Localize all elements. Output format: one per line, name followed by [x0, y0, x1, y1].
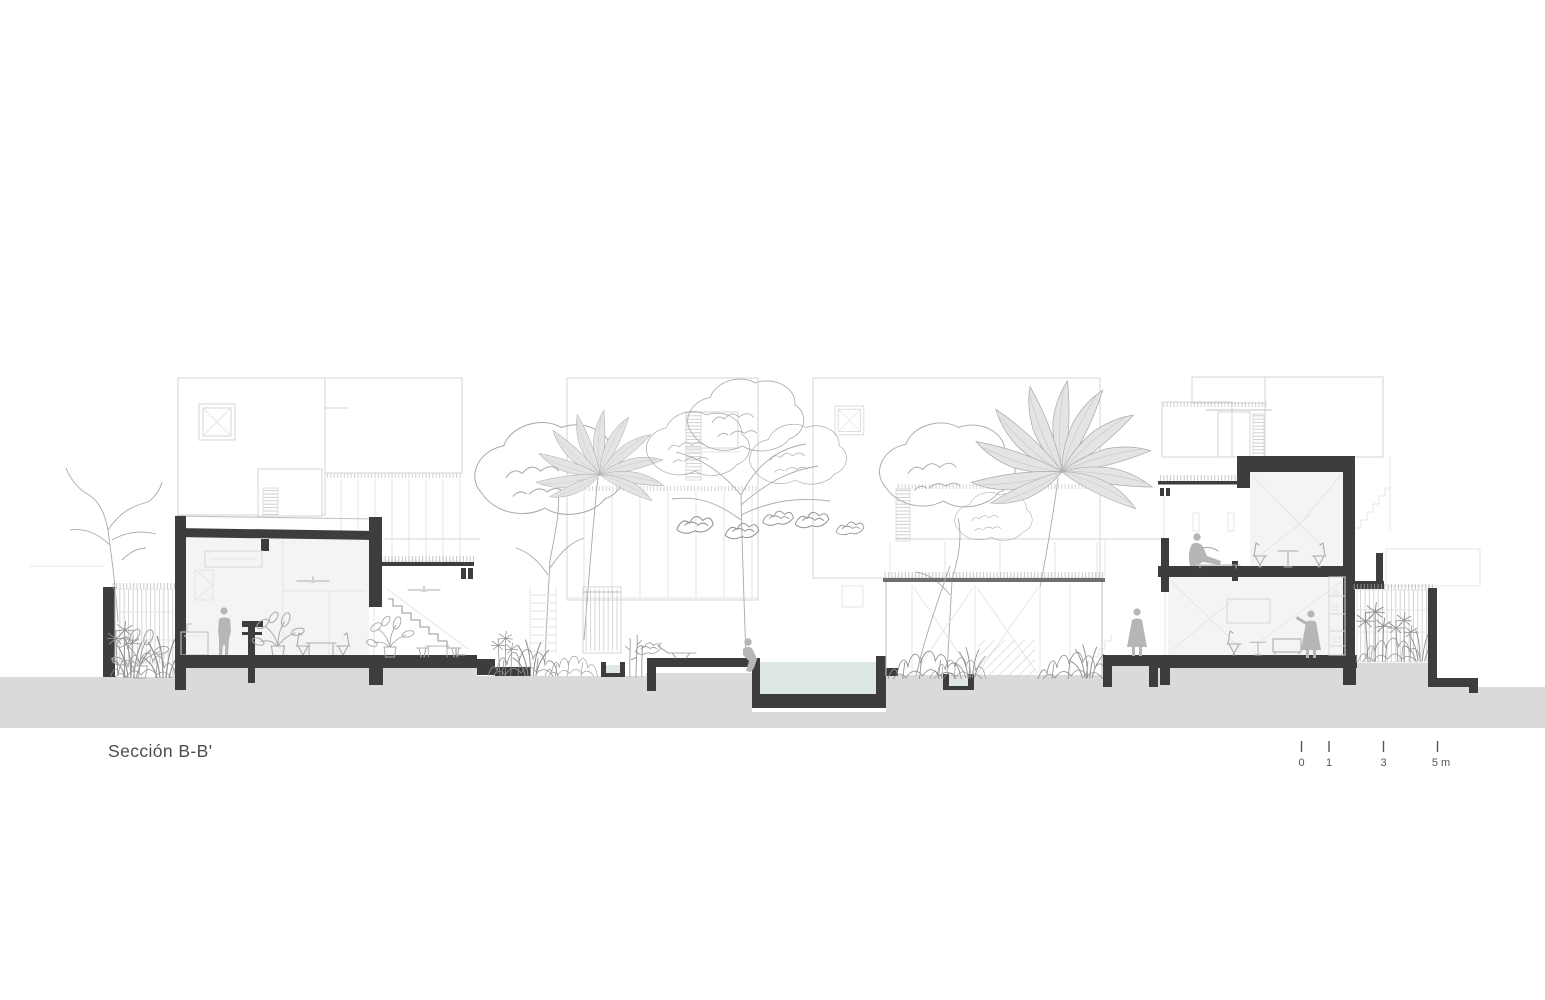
- right-middle-background-facade: [813, 378, 1160, 657]
- mid-floor-slab: [1158, 566, 1350, 577]
- terrace-roof: [1158, 481, 1240, 485]
- canopy-post: [1376, 553, 1383, 581]
- pool-shell: [752, 694, 886, 708]
- left-house-section: [175, 516, 531, 690]
- background-stair: [1355, 457, 1390, 530]
- garden-wall: [103, 587, 115, 677]
- tall-tree: [646, 379, 864, 658]
- left-courtyard: [103, 583, 184, 678]
- background-ladder: [530, 587, 556, 653]
- scale-label: 0: [1298, 757, 1304, 769]
- middle-background-facade: [567, 378, 758, 600]
- foundation-pier: [1343, 668, 1356, 685]
- pool-water: [760, 662, 876, 694]
- foundation-pier: [1160, 668, 1170, 685]
- louver-shutter: [686, 412, 701, 480]
- right-wall: [369, 517, 382, 607]
- courtyard-gate: [583, 587, 621, 653]
- louver-vent: [1253, 414, 1264, 457]
- drawing-title: Sección B-B': [108, 741, 212, 761]
- terrace-stair: [388, 599, 465, 655]
- foundation-pier: [369, 668, 383, 685]
- roof-corner: [1237, 456, 1250, 488]
- planting-bed: [978, 640, 1035, 676]
- pavilion-beam: [883, 578, 1105, 582]
- background-door: [1218, 412, 1250, 457]
- floor-slab: [1157, 655, 1357, 668]
- background-window: [199, 404, 235, 440]
- standing-woman-entry: [1127, 608, 1147, 656]
- lounge-chair: [658, 643, 696, 658]
- human-figures: [218, 533, 1321, 672]
- section-drawing-canvas: Sección B-B' 0 1 3 5 m: [0, 0, 1545, 1000]
- shrubs: [545, 656, 598, 676]
- terrace-wall: [1161, 538, 1169, 592]
- shrubs: [888, 651, 962, 679]
- scale-bar: 0 1 3 5 m: [1298, 741, 1450, 769]
- terrace: [366, 556, 474, 657]
- boundary-wall: [1428, 588, 1437, 687]
- floor-slab: [175, 655, 477, 668]
- annotations: Sección B-B' 0 1 3 5 m: [108, 741, 1450, 769]
- louver-vent: [896, 489, 910, 541]
- cactus-plant: [625, 635, 642, 677]
- garden-pavilion: [883, 566, 1108, 690]
- scale-label: 3: [1380, 757, 1386, 769]
- planter-basin: [601, 662, 625, 677]
- scale-label: 1: [1326, 757, 1332, 769]
- basin-water: [605, 665, 621, 674]
- step: [477, 659, 495, 675]
- scale-label: 5 m: [1432, 757, 1450, 769]
- potted-plant: [366, 615, 415, 657]
- entry-step: [1437, 678, 1478, 687]
- ceiling-fan: [408, 586, 440, 592]
- slat-fence: [115, 589, 173, 663]
- roof-slab: [1237, 456, 1355, 472]
- deck-plant: [635, 643, 660, 655]
- louver-vent: [263, 488, 278, 516]
- background-window: [835, 406, 864, 435]
- terrace-roof: [382, 562, 474, 566]
